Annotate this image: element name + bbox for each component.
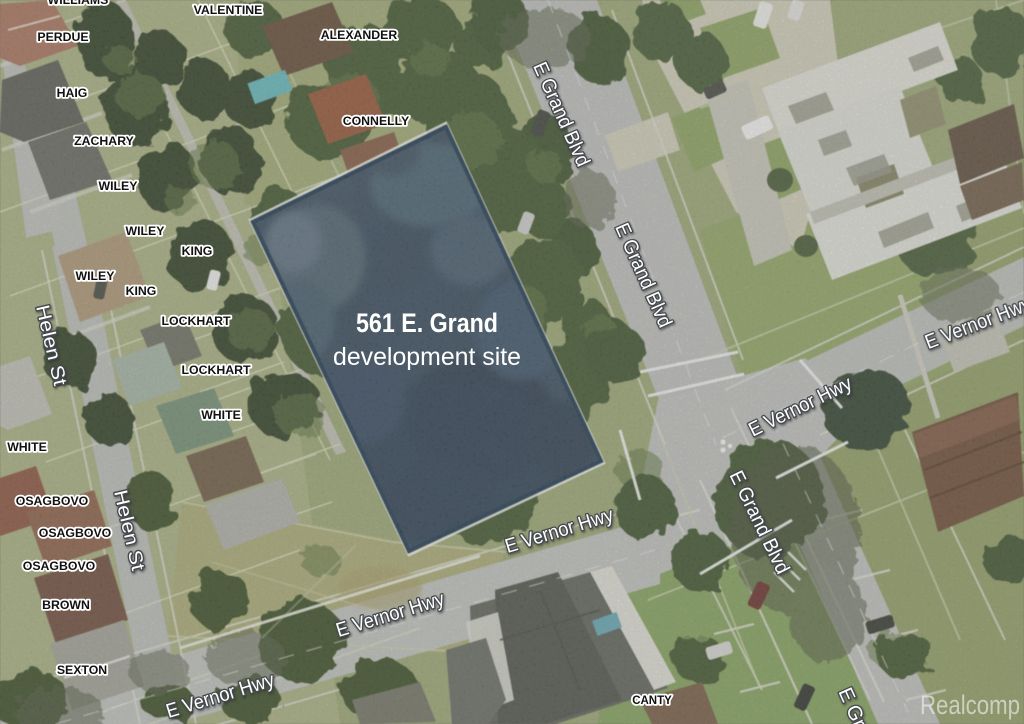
svg-text:WHITE: WHITE [7,440,47,454]
svg-text:KING: KING [182,244,213,258]
svg-text:561 E. Grand: 561 E. Grand [356,308,498,338]
svg-text:VALENTINE: VALENTINE [194,3,263,17]
svg-text:WILLIAMS: WILLIAMS [48,0,109,7]
svg-text:OSAGBOVO: OSAGBOVO [23,559,96,573]
svg-text:WILEY: WILEY [76,269,115,283]
svg-text:BROWN: BROWN [42,598,90,612]
svg-text:PERDUE: PERDUE [37,30,88,44]
svg-text:CONNELLY: CONNELLY [343,114,410,128]
svg-text:Realcomp: Realcomp [920,690,1020,720]
svg-text:development site: development site [333,343,521,371]
svg-text:ZACHARY: ZACHARY [74,134,134,148]
svg-text:OSAGBOVO: OSAGBOVO [16,494,89,508]
svg-text:LOCKHART: LOCKHART [182,363,251,377]
svg-text:WILEY: WILEY [99,179,138,193]
svg-text:SEXTON: SEXTON [57,663,107,677]
svg-text:OSAGBOVO: OSAGBOVO [39,526,112,540]
svg-text:WILEY: WILEY [126,224,165,238]
svg-text:HAIG: HAIG [57,86,88,100]
svg-text:CANTY: CANTY [632,695,672,707]
svg-text:KING: KING [126,284,157,298]
svg-text:LOCKHART: LOCKHART [162,314,231,328]
svg-text:ALEXANDER: ALEXANDER [321,28,398,42]
svg-text:WHITE: WHITE [201,408,241,422]
